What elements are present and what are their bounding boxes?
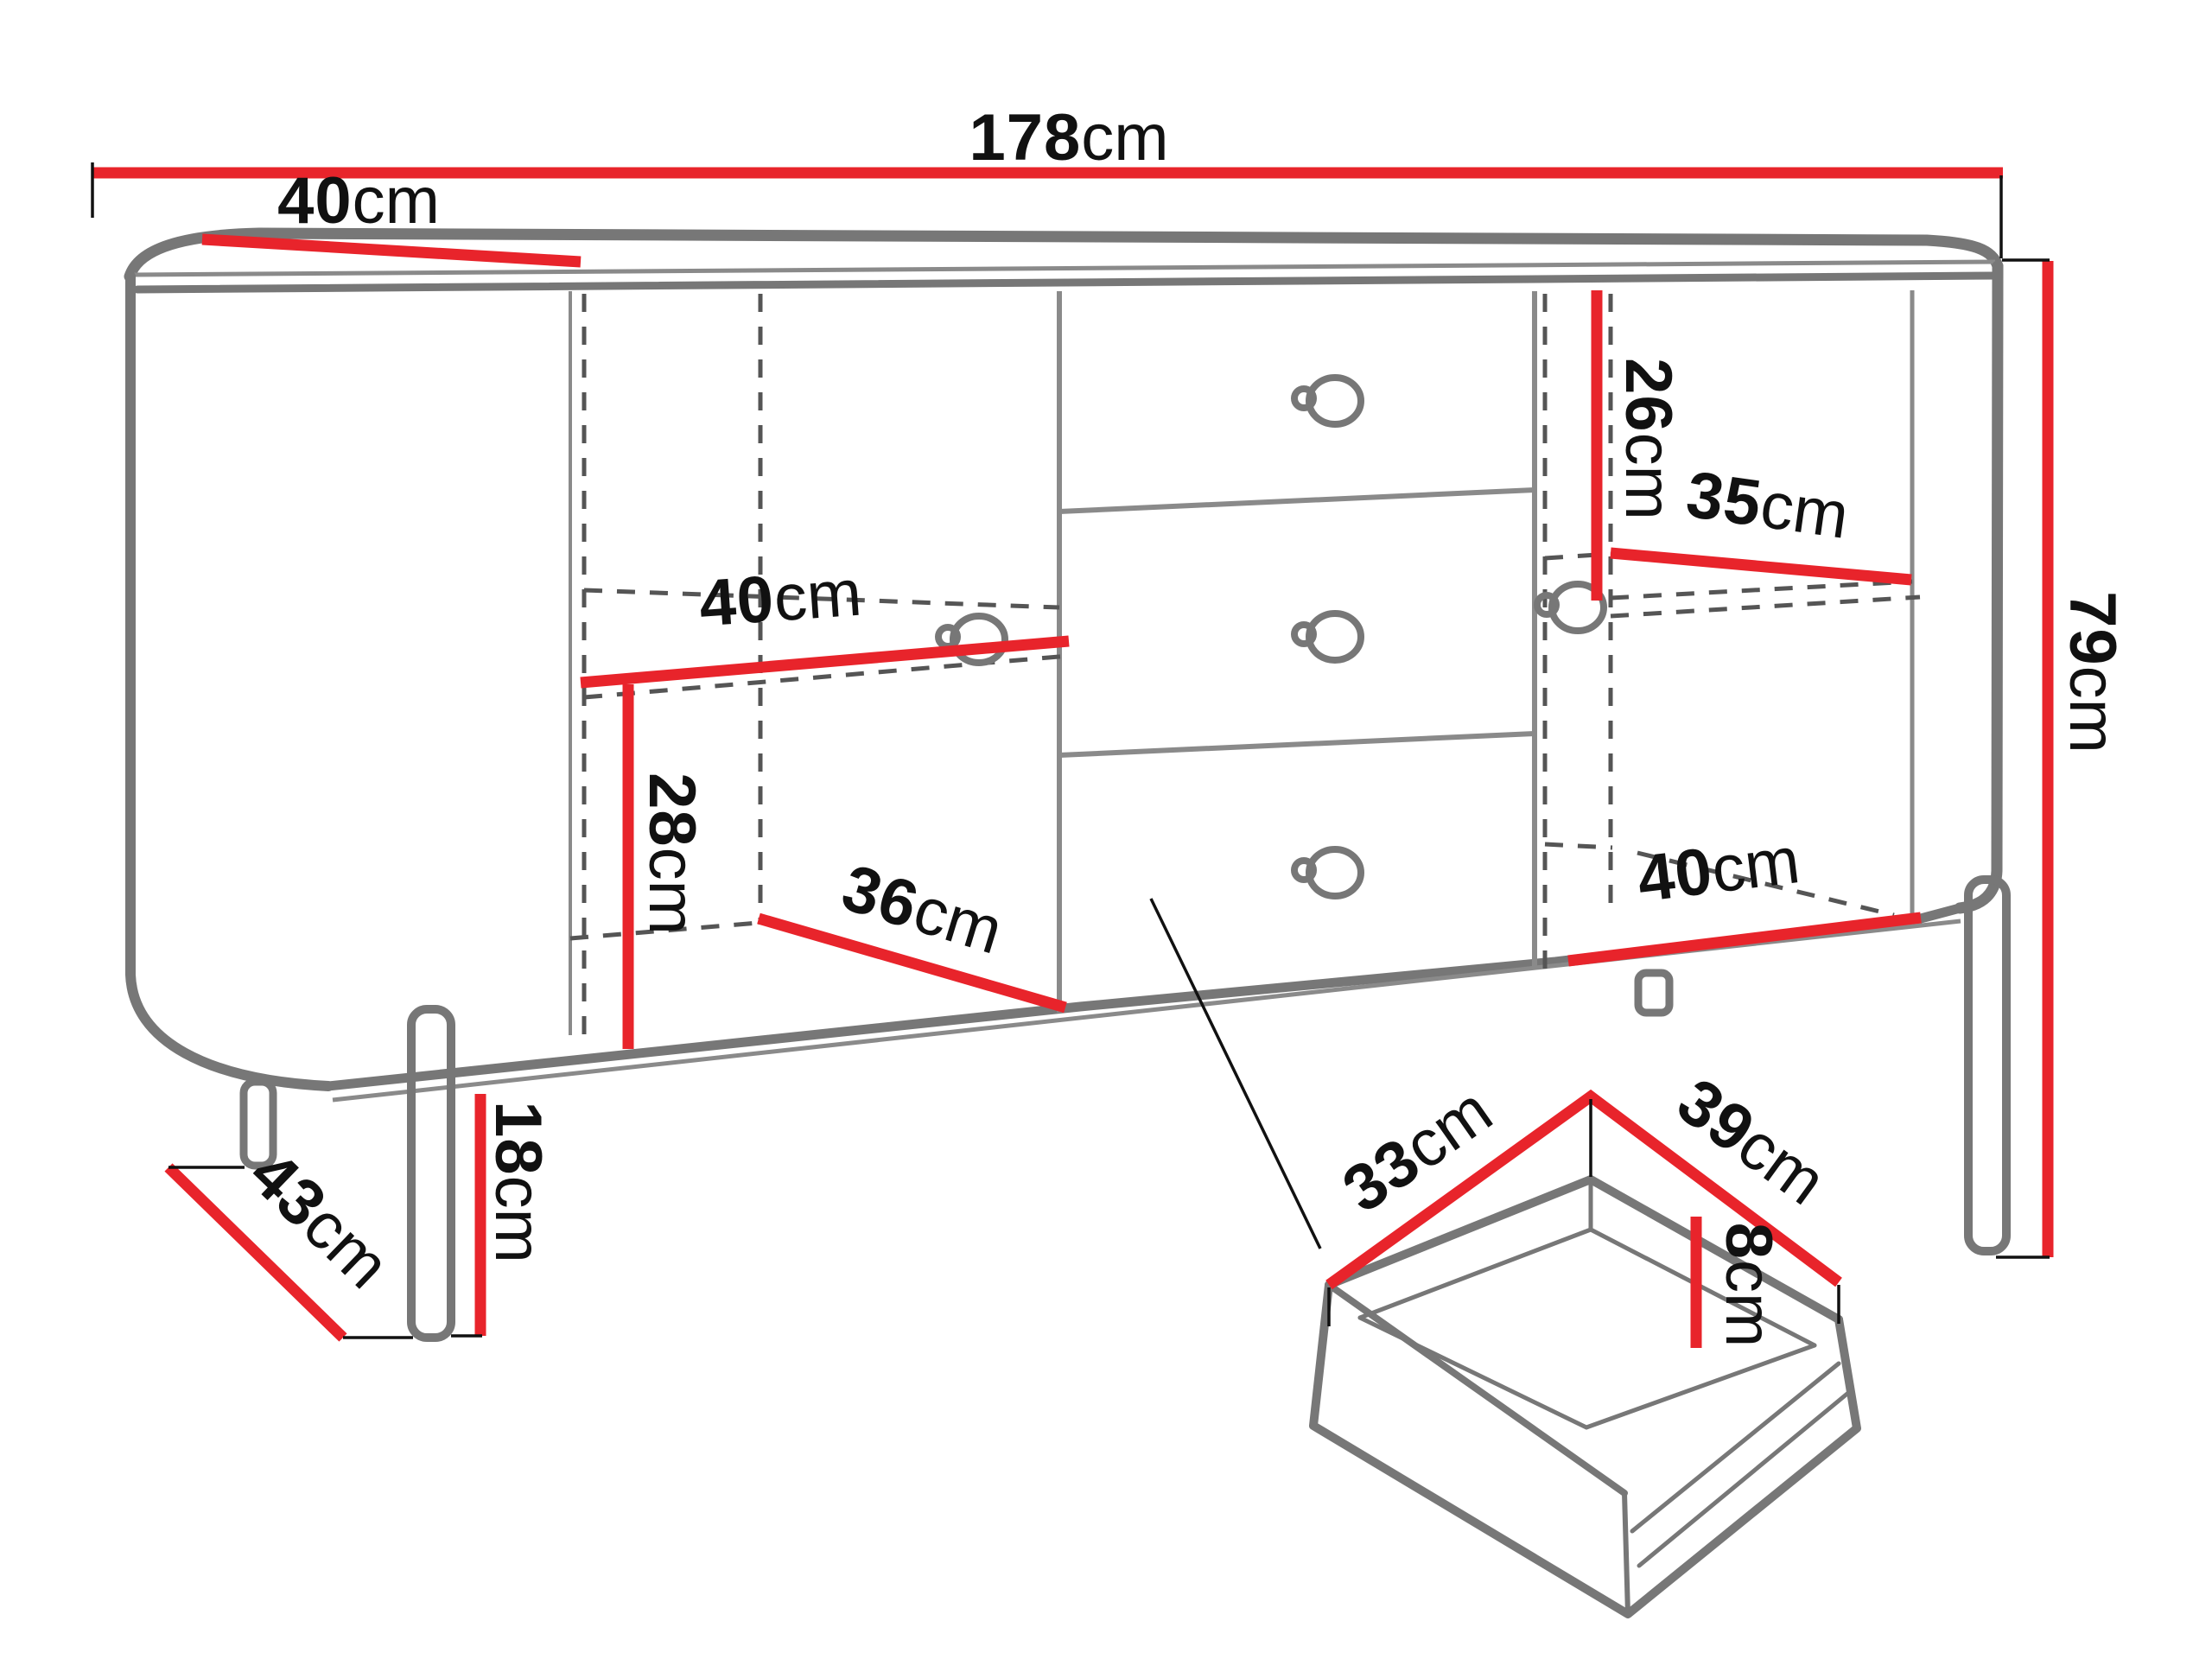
knobs xyxy=(938,378,1604,896)
right-side-edge xyxy=(1960,266,1998,908)
dim-line-right-shelf-width xyxy=(1611,553,1911,580)
label-left-shelf-width: 40cm xyxy=(697,556,864,641)
dimension-diagram: 178cm 40cm 26cm 35cm 79cm 40cm 28cm 36cm… xyxy=(0,0,2212,1659)
left-side-edge xyxy=(130,276,328,1086)
label-total-height: 79cm xyxy=(2056,591,2129,753)
drawer-knob-top xyxy=(1294,378,1361,424)
drawer-knob-middle xyxy=(1294,613,1361,660)
dim-line-top-depth xyxy=(202,239,581,262)
diagram-canvas: 178cm 40cm 26cm 35cm 79cm 40cm 28cm 36cm… xyxy=(0,0,2212,1659)
carcass-top-edge xyxy=(137,276,1996,289)
label-right-upper-height: 26cm xyxy=(1611,358,1685,520)
label-right-lower-width: 40cm xyxy=(1633,823,1803,916)
label-left-lower-height: 28cm xyxy=(635,772,709,935)
label-total-width: 178cm xyxy=(969,101,1168,175)
right-shelf-under-edge xyxy=(1611,597,1920,616)
label-leg-height: 18cm xyxy=(481,1101,555,1263)
label-drawer-side-height: 8cm xyxy=(1712,1223,1785,1348)
right-shelf-front-edge xyxy=(1611,582,1912,598)
right-bottom-back-corner xyxy=(1545,844,1612,848)
drawer-leader-line xyxy=(1151,899,1320,1249)
front-right-leg xyxy=(1968,880,2006,1251)
back-left-leg xyxy=(244,1082,273,1166)
front-left-leg xyxy=(411,1009,451,1338)
top-front-edge xyxy=(134,262,1995,275)
label-right-shelf-width: 35cm xyxy=(1682,458,1853,553)
drawer-divider-2 xyxy=(1059,734,1535,755)
dim-line-right-lower-width xyxy=(1568,918,1921,961)
label-drawer-width: 33cm xyxy=(1330,1073,1505,1226)
drawer-knob-bottom xyxy=(1294,849,1361,896)
drawer-divider-1 xyxy=(1059,490,1535,512)
middle-foot xyxy=(1638,973,1669,1013)
label-top-depth: 40cm xyxy=(277,164,440,238)
bottom-front-edge xyxy=(328,908,1960,1086)
label-drawer-depth: 39cm xyxy=(1664,1065,1839,1219)
